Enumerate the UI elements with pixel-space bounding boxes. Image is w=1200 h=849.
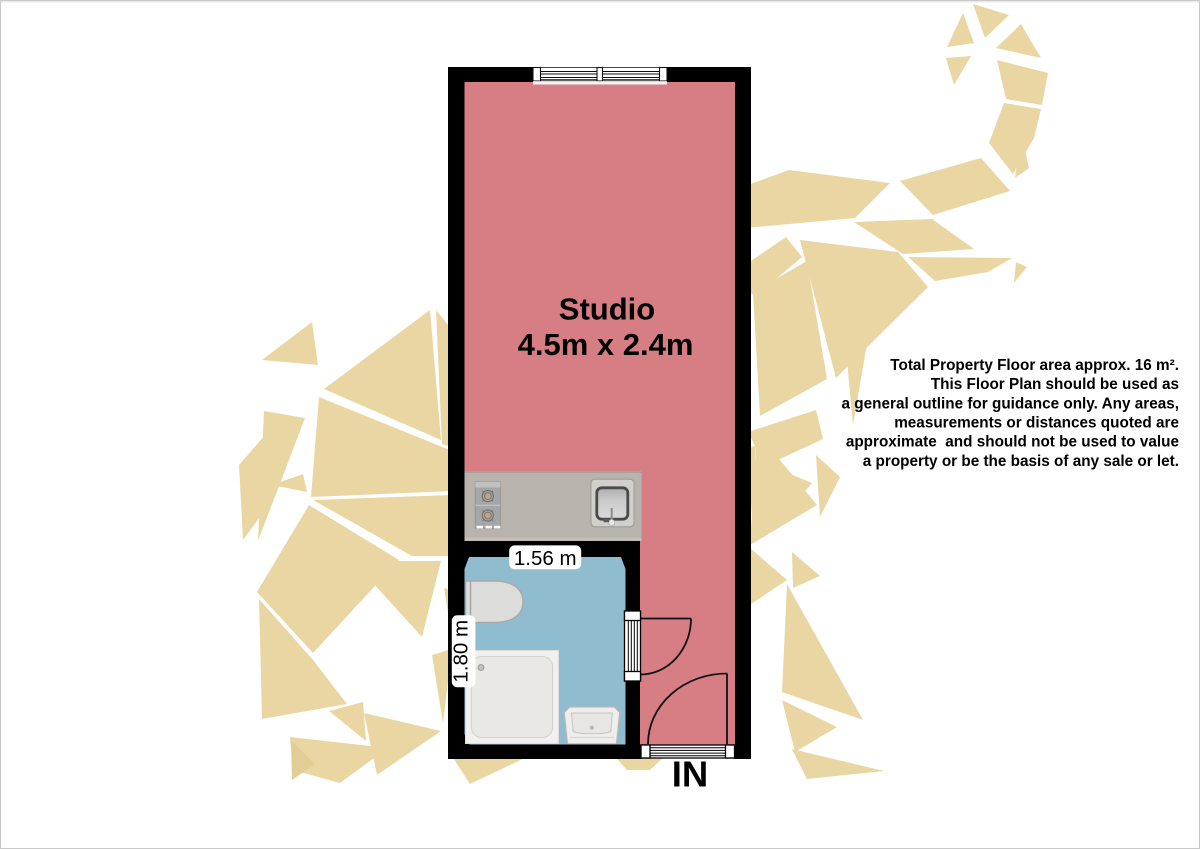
svg-text:1.80 m: 1.80 m [450,620,473,683]
svg-text:approximate and should not be: approximate and should not be used to va… [846,434,1179,451]
svg-text:4.5m x 2.4m: 4.5m x 2.4m [518,327,694,362]
svg-text:1.56 m: 1.56 m [514,547,577,570]
svg-text:measurements or distances quot: measurements or distances quoted are [894,415,1179,432]
svg-text:This Floor Plan should be used: This Floor Plan should be used as [931,376,1179,393]
svg-text:IN: IN [672,754,709,795]
svg-text:a property or be the basis of: a property or be the basis of any sale o… [863,453,1179,470]
svg-text:a general outline for guidance: a general outline for guidance only. Any… [842,395,1179,412]
svg-text:Total Property Floor area appr: Total Property Floor area approx. 16 m². [890,357,1179,374]
svg-text:Studio: Studio [559,292,655,327]
